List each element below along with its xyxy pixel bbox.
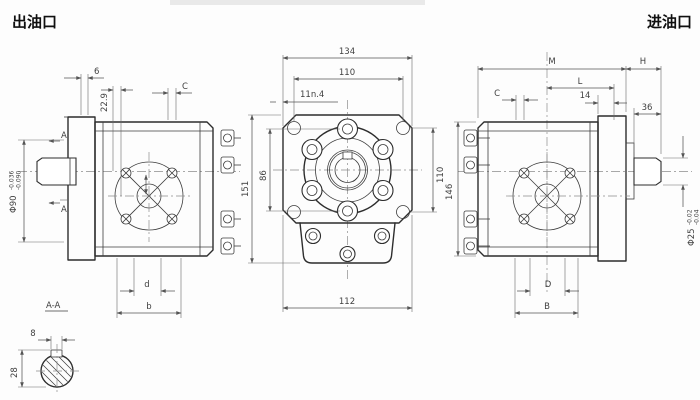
mount-circle-right bbox=[506, 152, 630, 242]
boss bbox=[373, 181, 393, 201]
drive-shaft-left bbox=[37, 158, 76, 185]
port-bosses-right bbox=[464, 130, 490, 254]
gear-pump-drawing: 出油口 进油口 bbox=[0, 0, 700, 400]
dim-h-label: H bbox=[640, 57, 646, 67]
left-view: 6 22.9 C A A Φ90 bbox=[9, 67, 242, 318]
section-aa-label: A-A bbox=[46, 301, 61, 311]
section-marker-top-label: A bbox=[61, 131, 67, 141]
dim-146-label: 146 bbox=[445, 184, 455, 200]
dim-c-right-label: C bbox=[494, 89, 500, 99]
dim-b-label: b bbox=[146, 302, 151, 312]
bolt-hole bbox=[121, 214, 131, 224]
front-view-dimensions: 134 110 11n.4 151 86 110 112 bbox=[241, 47, 446, 312]
corner-hole bbox=[288, 206, 301, 219]
dim-d-right-label: D bbox=[545, 280, 552, 290]
dim-11n4-label: 11n.4 bbox=[300, 90, 324, 100]
shaft-diameter-label: Φ25 -0.02 -0.04 bbox=[687, 209, 700, 246]
dim-14-label: 14 bbox=[580, 91, 591, 101]
bolt-hole bbox=[565, 214, 575, 224]
corner-hole bbox=[288, 122, 301, 135]
port-bosses-left bbox=[221, 130, 241, 254]
outlet-port-title: 出油口 bbox=[12, 13, 57, 31]
pump-body-left bbox=[64, 117, 213, 260]
dim-28-label: 28 bbox=[10, 367, 20, 378]
dim-m-label: M bbox=[548, 57, 555, 67]
section-aa: A-A 8 28 bbox=[10, 301, 84, 400]
bolt-hole bbox=[565, 168, 575, 178]
dim-l-label: L bbox=[578, 77, 583, 87]
dim-b-right-label: B bbox=[544, 302, 550, 312]
foot-hole bbox=[340, 247, 355, 262]
svg-text:-0.02: -0.02 bbox=[687, 209, 694, 225]
foot-hole bbox=[375, 229, 390, 244]
dim-key-width-label: 8 bbox=[30, 329, 35, 339]
mount-circle-left bbox=[108, 152, 190, 242]
right-view: M H L 14 C 36 146 bbox=[445, 52, 700, 318]
port-boss bbox=[221, 238, 241, 254]
boss bbox=[338, 201, 358, 221]
svg-text:Φ25: Φ25 bbox=[687, 228, 697, 246]
dim-112-label: 112 bbox=[339, 297, 355, 307]
dim-151-label: 151 bbox=[241, 181, 251, 197]
corner-hole bbox=[397, 206, 410, 219]
drawing-page: 出油口 进油口 bbox=[0, 0, 700, 400]
inlet-port-title: 进油口 bbox=[647, 13, 692, 31]
dim-d-label: d bbox=[144, 280, 149, 290]
keyway bbox=[343, 152, 352, 159]
right-view-dimensions: M H L 14 C 36 146 bbox=[445, 57, 700, 318]
corner-hole bbox=[397, 122, 410, 135]
dim-height-label: 22.9 bbox=[100, 93, 110, 112]
bolt-hole bbox=[519, 168, 529, 178]
boss bbox=[302, 140, 322, 160]
section-marker-bottom: A bbox=[49, 200, 69, 215]
port-boss bbox=[464, 157, 490, 173]
section-marker-top: A bbox=[49, 131, 67, 141]
port-boss bbox=[464, 238, 490, 254]
dim-110-top-label: 110 bbox=[339, 68, 355, 78]
port-boss bbox=[221, 211, 241, 227]
dim-step-label: 6 bbox=[94, 67, 99, 77]
svg-text:-0.04: -0.04 bbox=[694, 209, 700, 225]
pilot-diameter-label: Φ90 -0.036 -0.090 bbox=[9, 170, 23, 213]
svg-text:-0.090: -0.090 bbox=[16, 170, 23, 190]
section-marker-bottom-label: A bbox=[61, 205, 67, 215]
port-boss bbox=[464, 130, 490, 146]
svg-text:Φ90: Φ90 bbox=[9, 195, 19, 213]
key-section bbox=[51, 350, 62, 357]
bolt-hole bbox=[167, 168, 177, 178]
boss bbox=[338, 119, 358, 139]
port-boss bbox=[464, 211, 490, 227]
bolt-hole bbox=[167, 214, 177, 224]
dim-134-label: 134 bbox=[339, 47, 355, 57]
left-view-dimensions: 6 22.9 C A A Φ90 bbox=[9, 67, 193, 318]
port-boss bbox=[221, 130, 241, 146]
dim-36-label: 36 bbox=[642, 103, 653, 113]
scan-artifact bbox=[170, 0, 425, 5]
dim-86-label: 86 bbox=[259, 170, 269, 181]
drive-shaft-right bbox=[634, 158, 661, 185]
front-view: 134 110 11n.4 151 86 110 112 bbox=[241, 47, 446, 312]
boss bbox=[302, 181, 322, 201]
bolt-hole bbox=[519, 214, 529, 224]
bolt-hole bbox=[121, 168, 131, 178]
foot-hole bbox=[306, 229, 321, 244]
port-boss bbox=[221, 157, 241, 173]
dim-c-label: C bbox=[182, 82, 188, 92]
boss bbox=[373, 140, 393, 160]
svg-text:-0.036: -0.036 bbox=[9, 170, 16, 190]
dim-110-right-label: 110 bbox=[436, 167, 446, 183]
